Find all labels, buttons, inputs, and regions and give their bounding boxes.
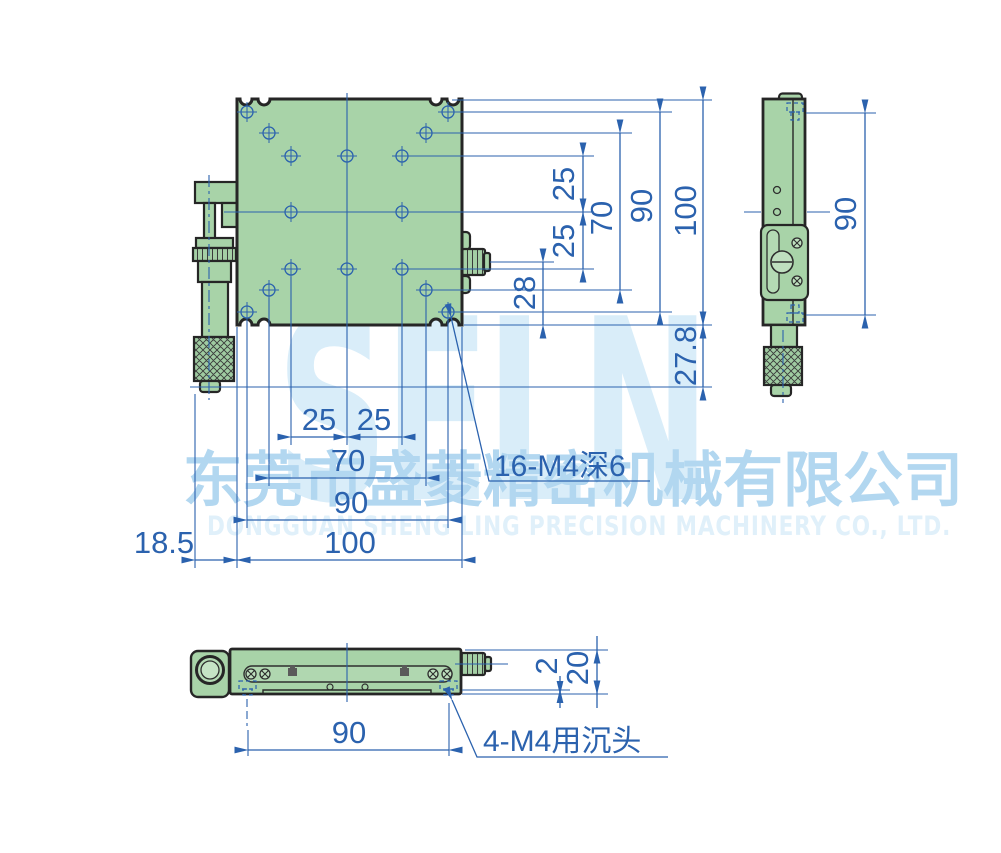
side-clamp-panel — [761, 225, 808, 300]
dim-row-25-top: 25 — [546, 167, 581, 201]
dim-drop-27-8: 27.8 — [668, 326, 703, 386]
dim-row-90: 90 — [624, 189, 659, 223]
callout-top-holes: 16-M4深6 — [451, 317, 650, 483]
dim-col-25-left: 25 — [302, 402, 336, 437]
drawing-canvas: SELN 东莞市盛菱精密机械有限公司 DONGGUAN SHENG LING P… — [0, 0, 1001, 853]
dim-bottom-90: 90 — [332, 715, 366, 750]
dim-side-90: 90 — [828, 197, 863, 231]
dim-stage-height-20: 20 — [560, 651, 595, 685]
front-view: 25 25 70 90 100 28 27.8 — [134, 93, 712, 568]
technical-drawing: 25 25 70 90 100 28 27.8 — [0, 0, 1001, 853]
callout-base-holes: 4-M4用沉头 — [452, 700, 668, 758]
dim-knob-axis-28: 28 — [507, 276, 542, 310]
bottom-view: 90 2 20 4-M4用沉头 — [191, 636, 668, 758]
dim-width-100: 100 — [324, 525, 376, 560]
dim-overhang-18-5: 18.5 — [134, 525, 194, 560]
callout-top-holes-label: 16-M4深6 — [494, 450, 626, 483]
dim-row-25-bottom: 25 — [546, 224, 581, 258]
dim-row-70: 70 — [584, 201, 619, 235]
dim-recess-2: 2 — [529, 657, 564, 674]
bottom-clamp-ring-bore — [201, 661, 219, 679]
bottom-slide-rail — [244, 666, 452, 682]
dim-height-100: 100 — [668, 185, 703, 237]
callout-base-holes-label: 4-M4用沉头 — [483, 725, 641, 758]
dim-col-70: 70 — [331, 443, 365, 478]
front-micrometer — [193, 182, 237, 392]
dim-col-90: 90 — [334, 485, 368, 520]
side-view: 90 — [744, 94, 876, 404]
dim-col-25-right: 25 — [357, 402, 391, 437]
